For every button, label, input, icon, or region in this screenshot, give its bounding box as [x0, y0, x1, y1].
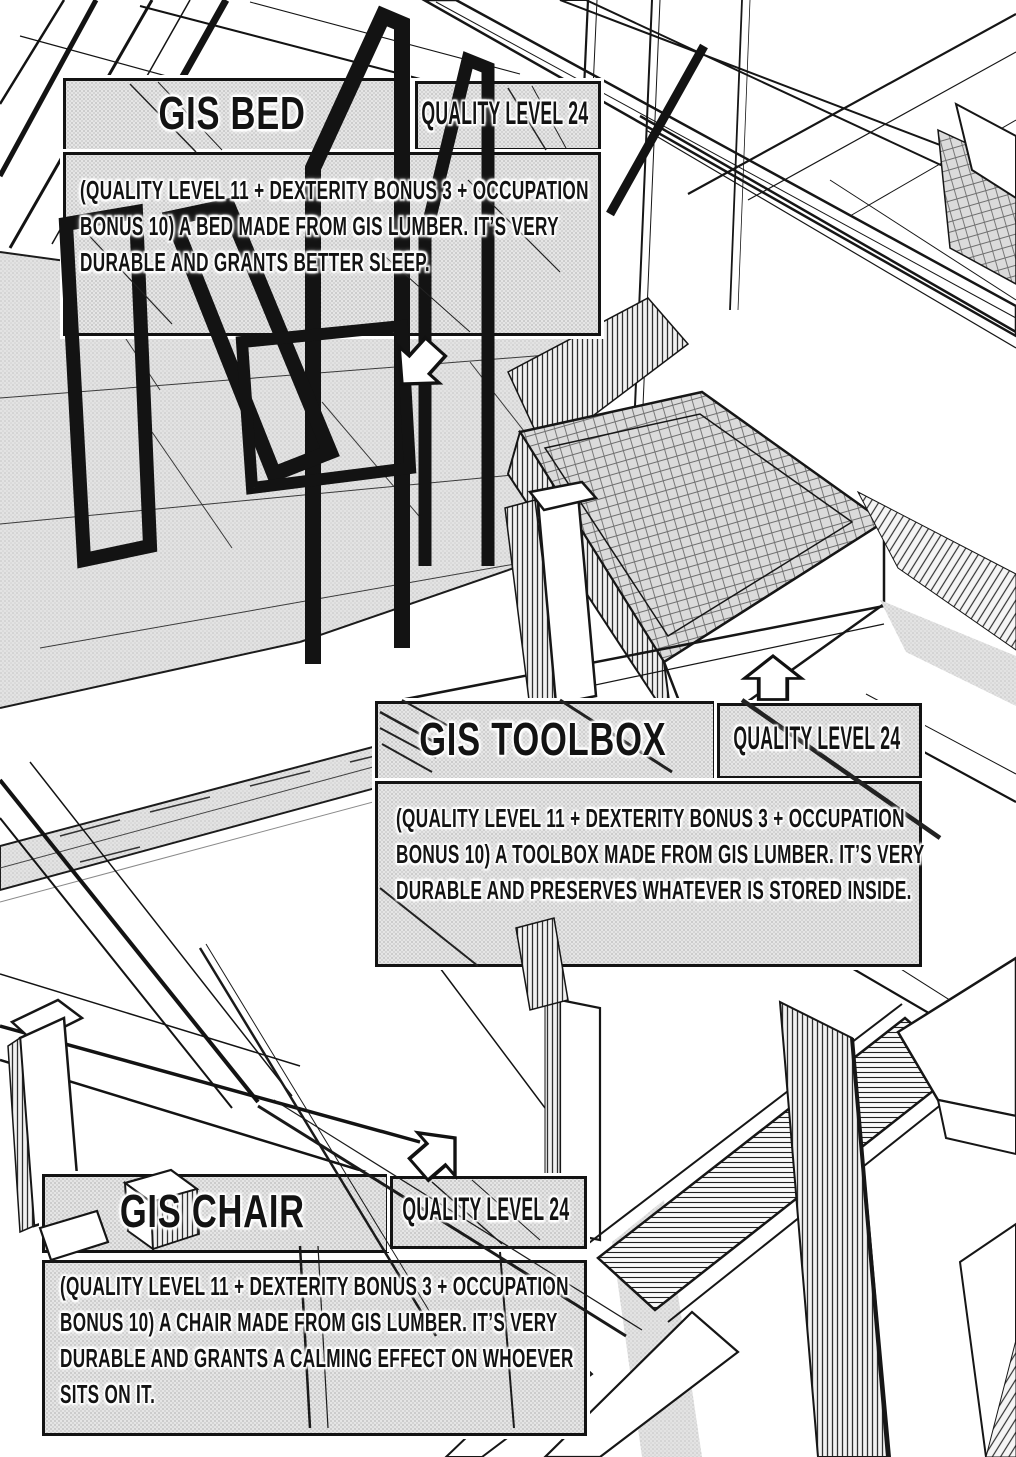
- description-line: BONUS 10) A TOOLBOX MADE FROM GIS LUMBER…: [396, 836, 733, 872]
- description-line: DURABLE AND GRANTS BETTER SLEEP.: [80, 244, 417, 280]
- description-line: BONUS 10) A BED MADE FROM GIS LUMBER. IT…: [80, 208, 417, 244]
- chair-panel-quality-label: QUALITY LEVEL 24: [402, 1191, 569, 1228]
- bed-panel-title: GIS BED: [63, 78, 402, 148]
- bed-panel-title-label: GIS BED: [159, 86, 306, 140]
- description-line: DURABLE AND GRANTS A CALMING EFFECT ON W…: [60, 1340, 390, 1376]
- description-line: DURABLE AND PRESERVES WHATEVER IS STORED…: [396, 872, 733, 908]
- bed-panel-quality-badge: QUALITY LEVEL 24: [415, 81, 595, 145]
- description-line: (QUALITY LEVEL 11 + DEXTERITY BONUS 3 + …: [80, 172, 417, 208]
- chair-panel-description: (QUALITY LEVEL 11 + DEXTERITY BONUS 3 + …: [60, 1268, 560, 1412]
- description-line: SITS ON IT.: [60, 1376, 390, 1412]
- toolbox-panel-quality-label: QUALITY LEVEL 24: [733, 720, 900, 757]
- description-line: (QUALITY LEVEL 11 + DEXTERITY BONUS 3 + …: [396, 800, 733, 836]
- description-line: BONUS 10) A CHAIR MADE FROM GIS LUMBER. …: [60, 1304, 390, 1340]
- toolbox-panel-quality-badge: QUALITY LEVEL 24: [717, 703, 916, 773]
- manga-page: GIS BED QUALITY LEVEL 24 (QUALITY LEVEL …: [0, 0, 1016, 1457]
- toolbox-panel-title-label: GIS TOOLBOX: [419, 712, 666, 766]
- toolbox-panel-title: GIS TOOLBOX: [375, 701, 710, 777]
- bed-panel-quality-label: QUALITY LEVEL 24: [421, 95, 588, 132]
- bed-panel-description: (QUALITY LEVEL 11 + DEXTERITY BONUS 3 + …: [80, 172, 590, 280]
- toolbox-panel-description: (QUALITY LEVEL 11 + DEXTERITY BONUS 3 + …: [396, 800, 906, 908]
- chair-panel-title-label: GIS CHAIR: [120, 1184, 305, 1238]
- chair-panel-quality-badge: QUALITY LEVEL 24: [390, 1176, 581, 1243]
- chair-panel-title: GIS CHAIR: [42, 1174, 383, 1247]
- description-line: (QUALITY LEVEL 11 + DEXTERITY BONUS 3 + …: [60, 1268, 390, 1304]
